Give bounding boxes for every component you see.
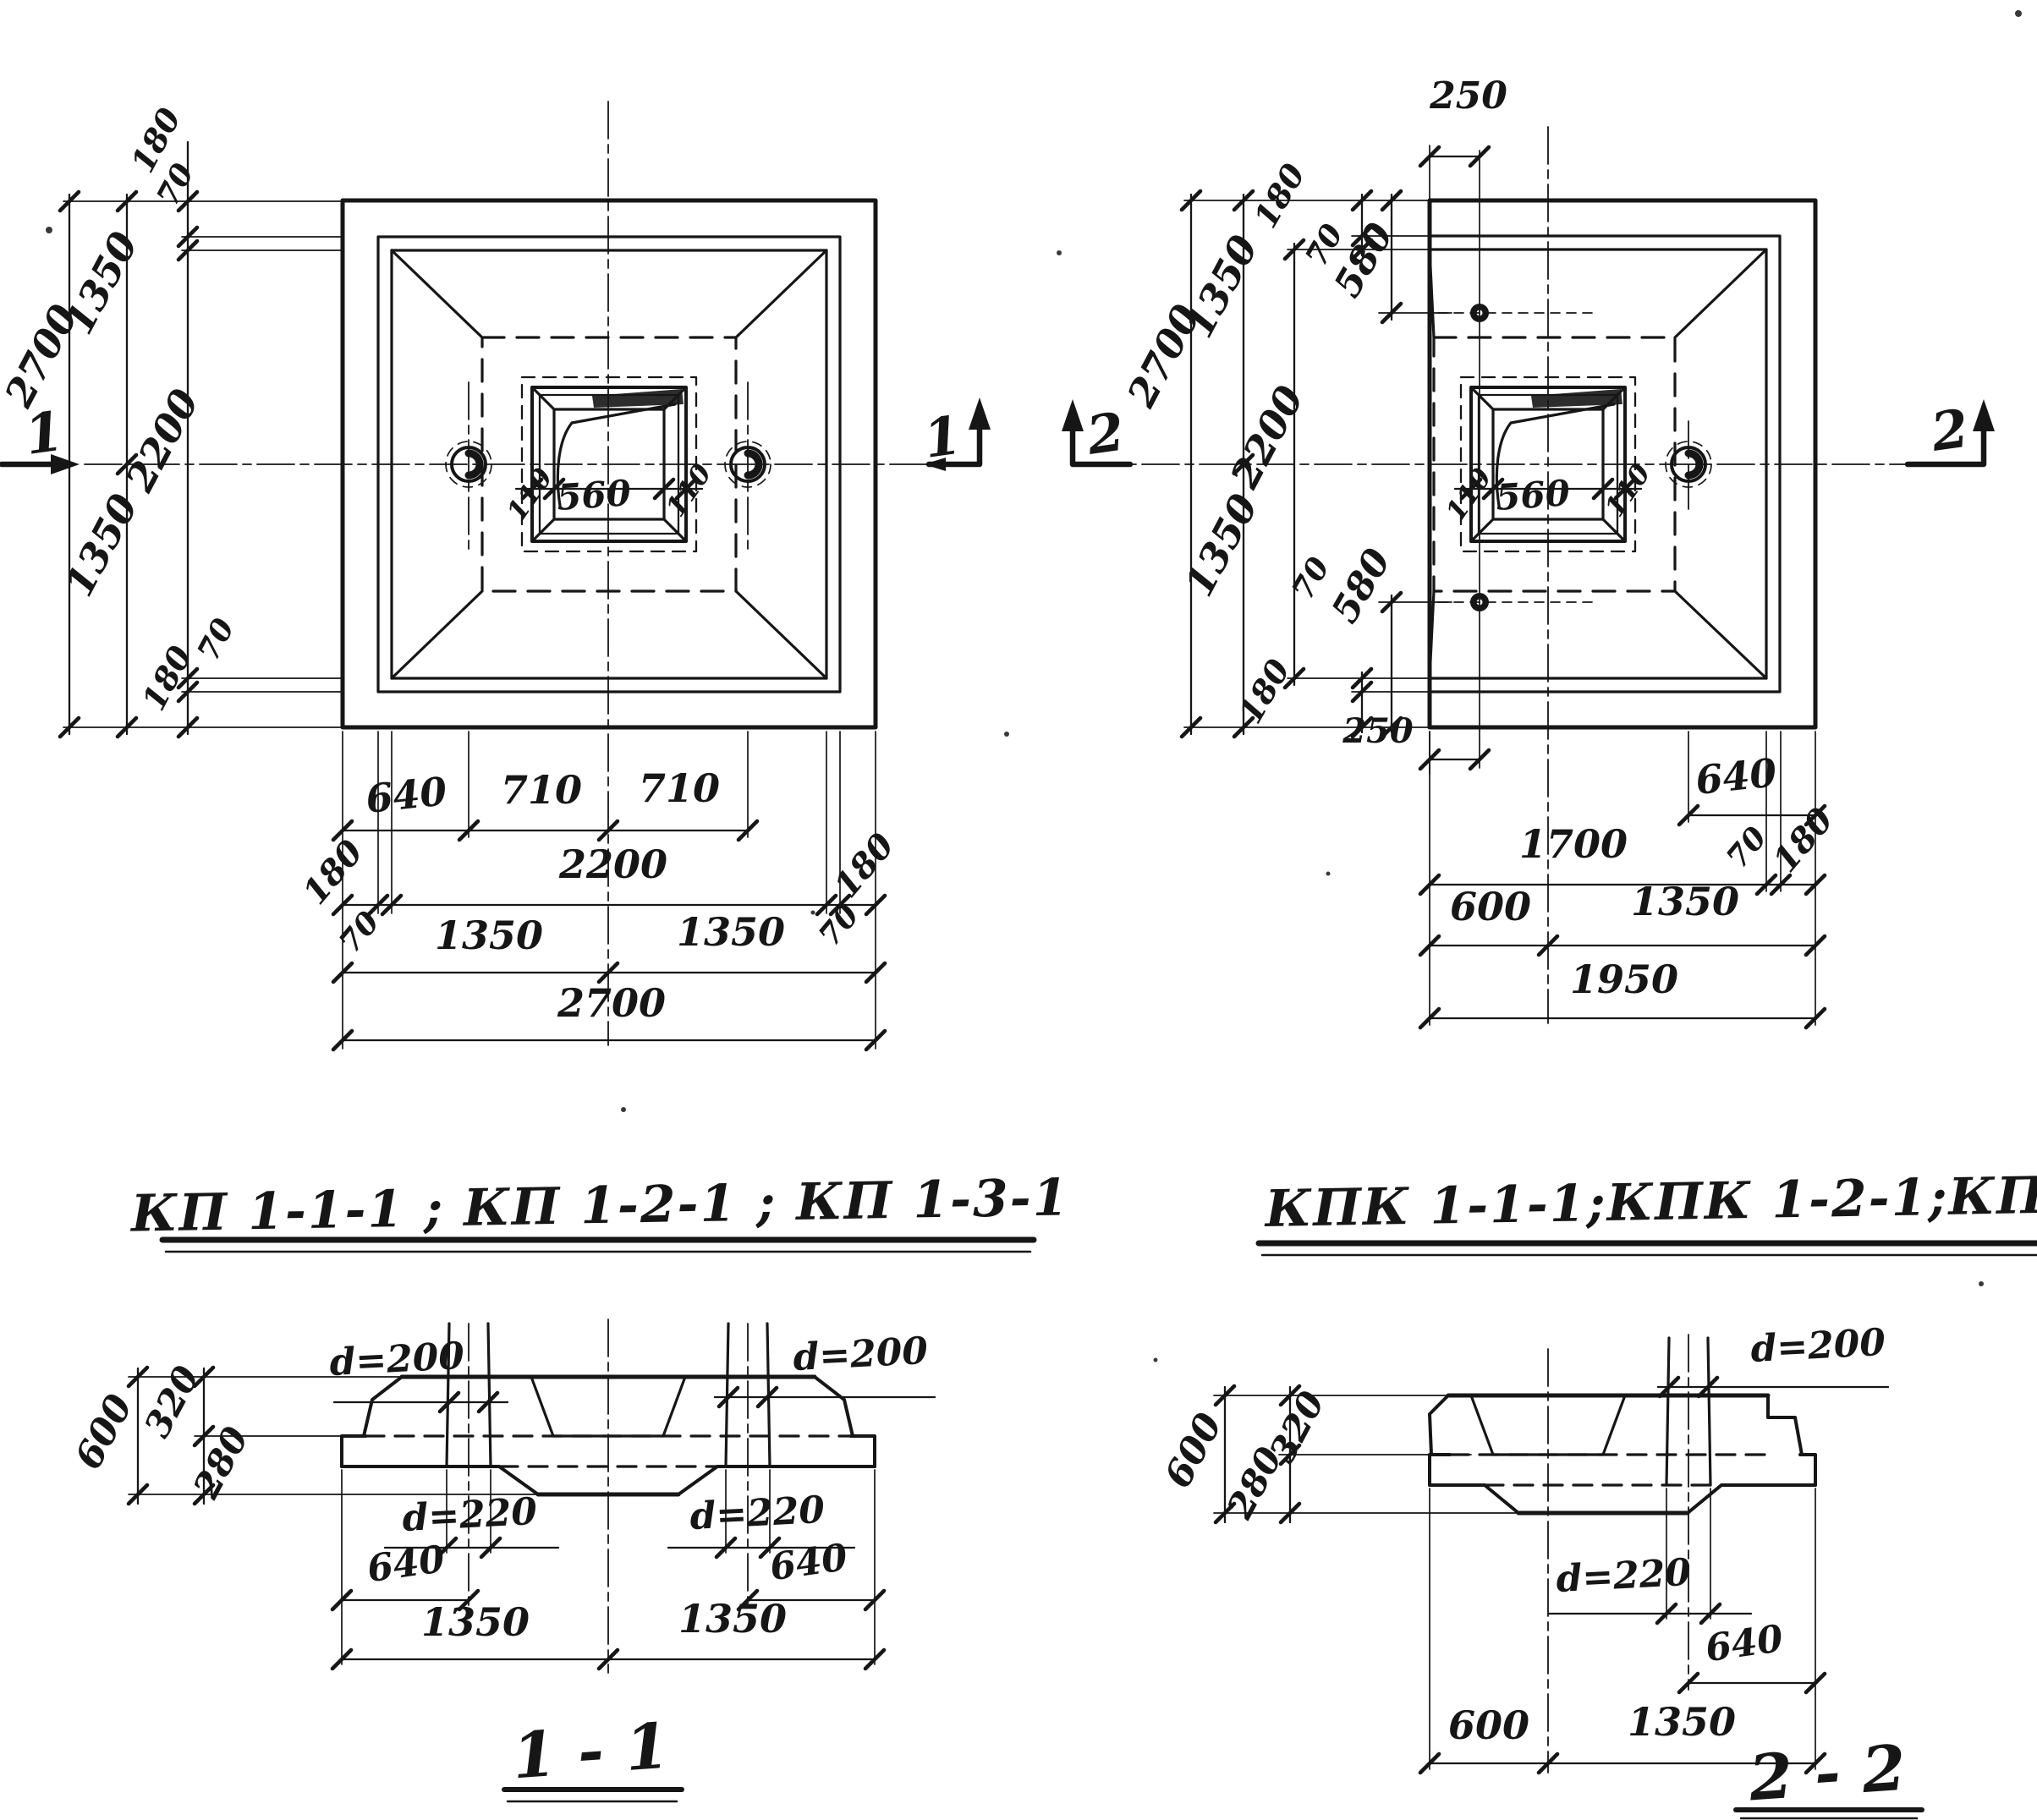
section-2-2-labels: d=200 600 320 280 d=220 640 600 1350: [1156, 1321, 1886, 1748]
dim-label: 640: [365, 1538, 447, 1591]
section-mark-1-left: 1: [2, 399, 80, 474]
section-mark-digit: 2: [1927, 397, 1973, 463]
dim-label: 560: [1495, 472, 1572, 518]
dim-label: 580: [1323, 541, 1399, 630]
plan-kp-title: КП 1-1-1 ; КП 1-2-1 ; КП 1-3-1: [129, 1168, 1070, 1243]
section-mark-digit: 2: [1083, 401, 1128, 467]
dim-label: 1350: [678, 1596, 787, 1642]
dim-label: d=220: [1555, 1551, 1692, 1601]
dim-label: 600: [67, 1387, 141, 1476]
dim-label: 320: [136, 1359, 207, 1444]
plan-kpk-title: КПК 1-1-1;КПК 1-2-1;КПК 1-3-1: [1263, 1162, 2037, 1239]
dim-label: 640: [1703, 1617, 1786, 1670]
dim-label: 180: [1231, 652, 1298, 730]
dim-label: 1700: [1519, 821, 1628, 867]
dim-label: 2200: [117, 381, 208, 499]
section-mark-digit: 1: [21, 399, 68, 467]
dim-label: 280: [185, 1420, 257, 1505]
plan-kp-view: 180 70 1350 2700 2200 1350 70 180 110 56…: [0, 101, 991, 1050]
dim-label: 110: [1598, 458, 1656, 523]
dim-label: 640: [364, 768, 449, 822]
dim-label: 180: [295, 832, 371, 912]
dim-label: 2700: [0, 297, 87, 414]
section-2-2-view: d=200 600 320 280 d=220 640 600 1350 2 -…: [1156, 1321, 1922, 1818]
dim-label: d=220: [689, 1488, 826, 1538]
dim-label: 2700: [557, 980, 666, 1026]
section-2-2-profile: [1430, 1395, 1815, 1513]
dim-label: 1350: [435, 913, 543, 958]
section-1-1-view: d=200 d=200 600 320 280 d=220 d=220 640 …: [67, 1319, 935, 1801]
dim-label: 1350: [1628, 1699, 1736, 1745]
dim-label: 1950: [1570, 957, 1678, 1002]
dim-label: 600: [1448, 1702, 1529, 1748]
dim-label: 600: [1450, 884, 1531, 929]
section-2-2-title-block: 2 - 2: [1736, 1732, 1922, 1818]
dim-label: 2200: [558, 841, 667, 887]
plan-kpk-view: 250 180 70 580 1350 2700 2200 1350 70 58…: [1062, 74, 1995, 1028]
plan-kp-labels: 180 70 1350 2700 2200 1350 70 180 110 56…: [0, 101, 903, 1026]
dim-label: 640: [767, 1536, 850, 1589]
dim-label: 600: [1156, 1406, 1231, 1494]
blueprint-page: 180 70 1350 2700 2200 1350 70 180 110 56…: [0, 0, 2037, 1820]
section-mark-2-right: 2: [1908, 397, 1995, 464]
dim-label: d=200: [328, 1335, 465, 1384]
plan-kpk-title-block: КПК 1-1-1;КПК 1-2-1;КПК 1-3-1: [1259, 1162, 2037, 1255]
dim-label: d=200: [1749, 1321, 1886, 1371]
dim-label: 2200: [1222, 378, 1313, 496]
dim-label: 110: [659, 458, 717, 523]
dim-label: 1350: [1631, 879, 1739, 924]
section-1-1-title: 1 - 1: [510, 1710, 672, 1794]
dim-label: 250: [1429, 74, 1507, 118]
section-mark-digit: 1: [920, 404, 965, 470]
dim-label: 1350: [1176, 486, 1267, 603]
dim-label: d=200: [792, 1329, 929, 1379]
dim-label: 180: [1246, 156, 1313, 234]
section-2-2-title: 2 - 2: [1746, 1732, 1908, 1816]
dim-label: 640: [1694, 749, 1779, 803]
dim-label: 560: [556, 472, 633, 518]
section-mark-1-right: 1: [920, 397, 991, 471]
dim-label: 70: [812, 898, 866, 953]
section-1-1-title-block: 1 - 1: [504, 1710, 682, 1801]
section-mark-2-left: 2: [1062, 399, 1130, 467]
dim-label: 1350: [677, 909, 785, 955]
dim-label: 180: [826, 825, 903, 905]
dim-label: 250: [1342, 711, 1414, 751]
dim-label: 180: [1765, 800, 1842, 880]
section-2-2-dimension-lines: [1216, 1378, 1888, 1773]
dim-label: 710: [501, 767, 582, 813]
dim-label: 1350: [421, 1599, 530, 1645]
dim-label: 2700: [1118, 297, 1210, 414]
plan-kp-title-block: КП 1-1-1 ; КП 1-2-1 ; КП 1-3-1: [129, 1168, 1070, 1252]
dim-label: 710: [639, 765, 720, 811]
drawing-canvas: 180 70 1350 2700 2200 1350 70 180 110 56…: [0, 0, 2037, 1820]
dim-label: d=220: [401, 1490, 538, 1540]
